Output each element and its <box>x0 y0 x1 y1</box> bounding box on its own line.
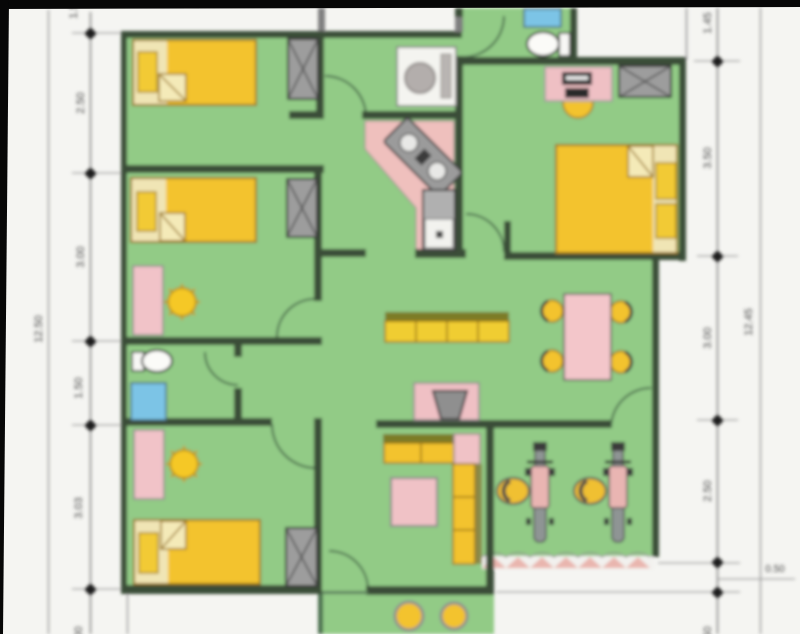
svg-text:2.50: 2.50 <box>702 626 714 634</box>
svg-text:3.00: 3.00 <box>75 246 87 267</box>
svg-text:3.00: 3.00 <box>73 626 85 634</box>
svg-text:3.03: 3.03 <box>73 497 85 518</box>
svg-text:12.50: 12.50 <box>33 315 45 343</box>
svg-text:1.50: 1.50 <box>73 377 85 398</box>
svg-text:3.50: 3.50 <box>702 147 714 168</box>
svg-text:0.50: 0.50 <box>765 564 785 575</box>
svg-text:2.50: 2.50 <box>702 480 714 501</box>
svg-text:3.00: 3.00 <box>702 327 714 348</box>
svg-text:12.45: 12.45 <box>743 308 755 336</box>
svg-text:1.45: 1.45 <box>702 12 714 33</box>
svg-text:2.50: 2.50 <box>75 92 87 113</box>
